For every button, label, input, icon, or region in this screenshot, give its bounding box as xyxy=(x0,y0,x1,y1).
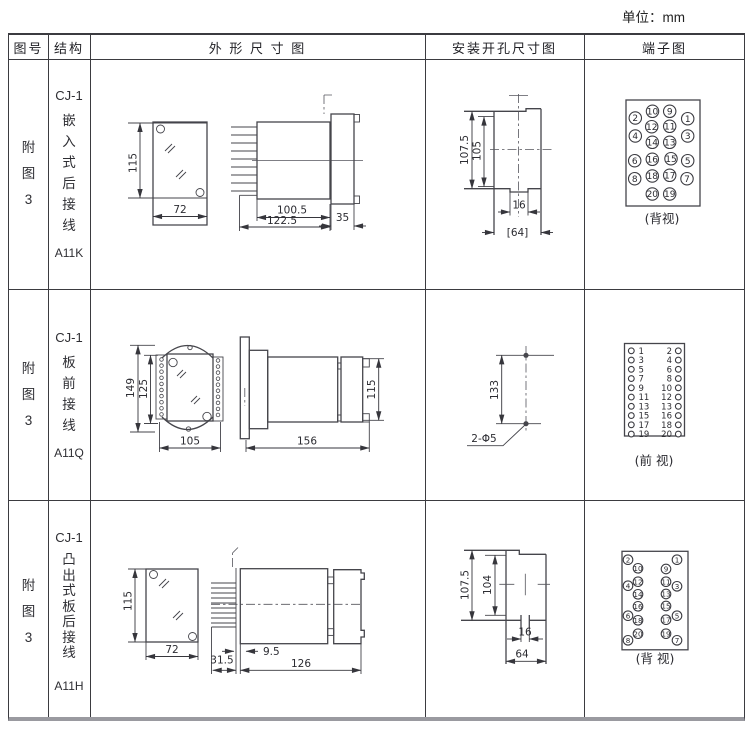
mounting-drawing-row3: 107.5 104 16 64 xyxy=(425,500,584,723)
terminal-19 xyxy=(628,431,634,437)
terminal-number: 6 xyxy=(632,157,638,167)
dim-cutout-width: 64 xyxy=(515,649,529,661)
outline-drawing-row2: 149 125 105 156 115 xyxy=(90,289,425,500)
dim-plate: 9.5 xyxy=(263,646,280,658)
dim-cutout-height2: 105 xyxy=(472,141,484,161)
terminal-number: 12 xyxy=(633,577,642,586)
terminal-11 xyxy=(628,394,634,400)
terminal-15 xyxy=(628,413,634,419)
terminal-screw-icon xyxy=(216,407,220,411)
structure-row1: CJ-1 嵌 入 式 后 接 线 A11K xyxy=(48,59,90,289)
terminal-number: 19 xyxy=(664,190,676,200)
dim-depth: 126 xyxy=(291,658,311,670)
terminal-screw-icon xyxy=(216,359,220,363)
dim-cutout-height: 107.5 xyxy=(459,570,471,600)
terminal-9 xyxy=(628,385,634,391)
dim-cutout-height: 107.5 xyxy=(459,135,471,165)
terminal-screw-icon xyxy=(216,401,220,405)
terminal-screw-icon xyxy=(160,358,164,362)
terminal-screw-icon xyxy=(160,370,164,374)
terminal-number: 7 xyxy=(684,175,690,185)
terminal-number: 8 xyxy=(626,636,631,645)
terminal-number: 17 xyxy=(661,615,670,624)
dim-front-width: 72 xyxy=(165,644,178,656)
terminal-4 xyxy=(675,357,681,363)
terminal-10 xyxy=(675,385,681,391)
terminal-number: 12 xyxy=(646,123,657,133)
dim-slot: 16 xyxy=(512,200,526,212)
fig-no-row2: 附 图 3 xyxy=(9,289,48,500)
terminal-8 xyxy=(675,376,681,382)
dim-front-height: 115 xyxy=(123,591,135,611)
model-code: A11Q xyxy=(54,446,84,460)
terminal-number: 17 xyxy=(664,172,675,182)
dim-front-width: 105 xyxy=(180,436,200,448)
terminal-number: 9 xyxy=(667,108,673,118)
terminal-screw-icon xyxy=(216,389,220,393)
terminal-number: 19 xyxy=(661,629,671,638)
dim-cutout-height2: 104 xyxy=(482,575,494,595)
terminal-screw-icon xyxy=(160,382,164,386)
terminal-number: 7 xyxy=(675,636,680,645)
terminal-screw-icon xyxy=(160,376,164,380)
dim-holes: 2-Φ5 xyxy=(471,433,496,445)
model-code: A11K xyxy=(55,246,83,260)
terminal-number: 13 xyxy=(664,139,675,149)
terminal-number: 15 xyxy=(665,155,676,165)
terminal-13 xyxy=(675,403,681,409)
dim-cutout-width: [64] xyxy=(507,227,529,239)
terminal-number: 10 xyxy=(633,564,643,573)
terminal-number: 3 xyxy=(685,132,691,142)
terminal-6 xyxy=(675,366,681,372)
terminal-18 xyxy=(675,422,681,428)
unit-label: 单位：mm xyxy=(622,6,685,26)
terminal-number: 20 xyxy=(647,190,659,200)
terminal-3 xyxy=(628,357,634,363)
page: 单位：mm 图号 结构 外 形 尺 寸 图 安装开孔尺寸图 端子图 附 图 3 … xyxy=(0,0,751,735)
terminal-number: 18 xyxy=(647,172,659,182)
terminal-number: 14 xyxy=(633,590,643,599)
model-label: CJ-1 xyxy=(55,88,82,103)
header-terminal: 端子图 xyxy=(584,35,745,59)
model-code: A11H xyxy=(54,679,83,693)
terminal-number: 6 xyxy=(626,611,631,620)
terminal-number: 15 xyxy=(661,602,670,611)
dim-front-height: 149 xyxy=(125,378,137,398)
terminal-number: 11 xyxy=(661,577,670,586)
mounting-drawing-row1: 107.5 105 16 [64] xyxy=(425,59,584,289)
terminal-number: 4 xyxy=(626,581,631,590)
terminal-5 xyxy=(628,366,634,372)
terminal-number: 19 xyxy=(639,430,650,440)
terminal-number: 3 xyxy=(675,582,680,591)
terminal-view-label: (前 视) xyxy=(635,453,674,468)
terminal-number: 18 xyxy=(633,616,643,625)
dim-front-width: 72 xyxy=(173,204,186,216)
dim-slot: 16 xyxy=(518,627,532,639)
dim-total-depth: 122.5 xyxy=(267,215,297,227)
dim-inner-height: 125 xyxy=(138,379,150,399)
terminal-number: 10 xyxy=(647,108,659,118)
structure-row2: CJ-1 板 前 接 线 A11Q xyxy=(48,289,90,500)
dim-depth: 156 xyxy=(297,436,317,448)
dim-hole-pitch: 133 xyxy=(489,380,501,400)
terminal-diagram-row1: (背视) 1092112114314131615651817872019 xyxy=(584,59,745,289)
dim-rear-height: 115 xyxy=(366,379,378,399)
terminal-view-label: (背视) xyxy=(645,211,680,226)
terminal-view-label: (背 视) xyxy=(636,651,675,666)
terminal-number: 14 xyxy=(647,139,659,149)
structure-row3: CJ-1 凸 出 式 板 后 接 线 A11H xyxy=(48,500,90,723)
terminal-number: 1 xyxy=(675,555,680,564)
terminal-12 xyxy=(675,394,681,400)
outline-drawing-row1: 115 72 100.5 122.5 35 xyxy=(90,59,425,289)
model-label: CJ-1 xyxy=(55,530,82,545)
dim-front-height: 115 xyxy=(128,153,140,173)
terminal-screw-icon xyxy=(160,413,164,417)
terminal-number: 13 xyxy=(661,590,670,599)
terminal-number: 5 xyxy=(685,157,691,167)
terminal-7 xyxy=(628,376,634,382)
terminal-screw-icon xyxy=(216,365,220,369)
fig-no-row1: 附 图 3 xyxy=(9,59,48,289)
terminal-screw-icon xyxy=(216,413,220,417)
terminal-17 xyxy=(628,422,634,428)
terminal-screw-icon xyxy=(216,395,220,399)
terminal-number: 8 xyxy=(632,175,638,185)
terminal-screw-icon xyxy=(160,388,164,392)
terminal-screw-icon xyxy=(216,371,220,375)
terminal-number: 2 xyxy=(626,555,631,564)
terminal-screw-icon xyxy=(216,383,220,387)
terminal-number: 1 xyxy=(685,115,691,125)
mounting-drawing-row2: 133 2-Φ5 xyxy=(425,289,584,500)
terminal-screw-icon xyxy=(216,377,220,381)
terminal-16 xyxy=(675,413,681,419)
terminal-13 xyxy=(628,403,634,409)
terminal-screw-icon xyxy=(160,400,164,404)
header-fig-no: 图号 xyxy=(9,35,48,59)
dim-pin-length: 31.5 xyxy=(210,655,233,667)
terminal-number: 11 xyxy=(664,123,675,133)
terminal-number: 9 xyxy=(664,565,669,574)
dim-flange: 35 xyxy=(336,212,349,224)
terminal-2 xyxy=(675,348,681,354)
outline-drawing-row3: 115 72 9.5 31.5 126 xyxy=(90,500,425,723)
model-label: CJ-1 xyxy=(55,330,82,345)
header-structure: 结构 xyxy=(48,35,90,59)
terminal-screw-icon xyxy=(160,394,164,398)
terminal-number: 16 xyxy=(633,602,643,611)
terminal-number: 4 xyxy=(632,132,638,142)
terminal-number: 20 xyxy=(661,430,672,440)
header-mounting: 安装开孔尺寸图 xyxy=(425,35,584,59)
terminal-number: 5 xyxy=(675,611,680,620)
terminal-diagram-row2: (前 视) 1234567891011121313151617181920 xyxy=(584,289,745,500)
terminal-screw-icon xyxy=(160,364,164,368)
terminal-1 xyxy=(628,348,634,354)
terminal-number: 16 xyxy=(647,156,659,166)
terminal-screw-icon xyxy=(160,407,164,411)
header-outline: 外 形 尺 寸 图 xyxy=(90,35,425,59)
terminal-20 xyxy=(675,431,681,437)
terminal-number: 20 xyxy=(633,629,643,638)
fig-no-row3: 附 图 3 xyxy=(9,500,48,723)
terminal-number: 2 xyxy=(632,114,638,124)
spec-table: 图号 结构 外 形 尺 寸 图 安装开孔尺寸图 端子图 附 图 3 CJ-1 嵌… xyxy=(8,33,745,721)
terminal-diagram-row3: (背 视) 2110912114314131615651817201987 xyxy=(584,500,745,723)
